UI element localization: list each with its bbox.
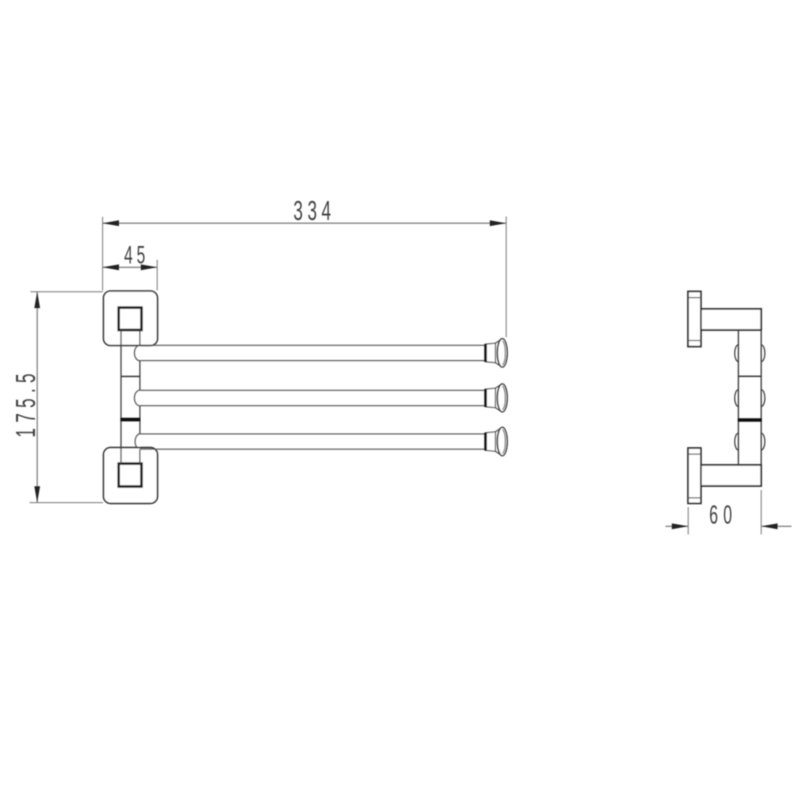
svg-text:334: 334	[293, 195, 335, 226]
svg-text:60: 60	[709, 502, 737, 530]
svg-text:45: 45	[124, 242, 149, 270]
svg-text:175.5: 175.5	[10, 368, 41, 437]
